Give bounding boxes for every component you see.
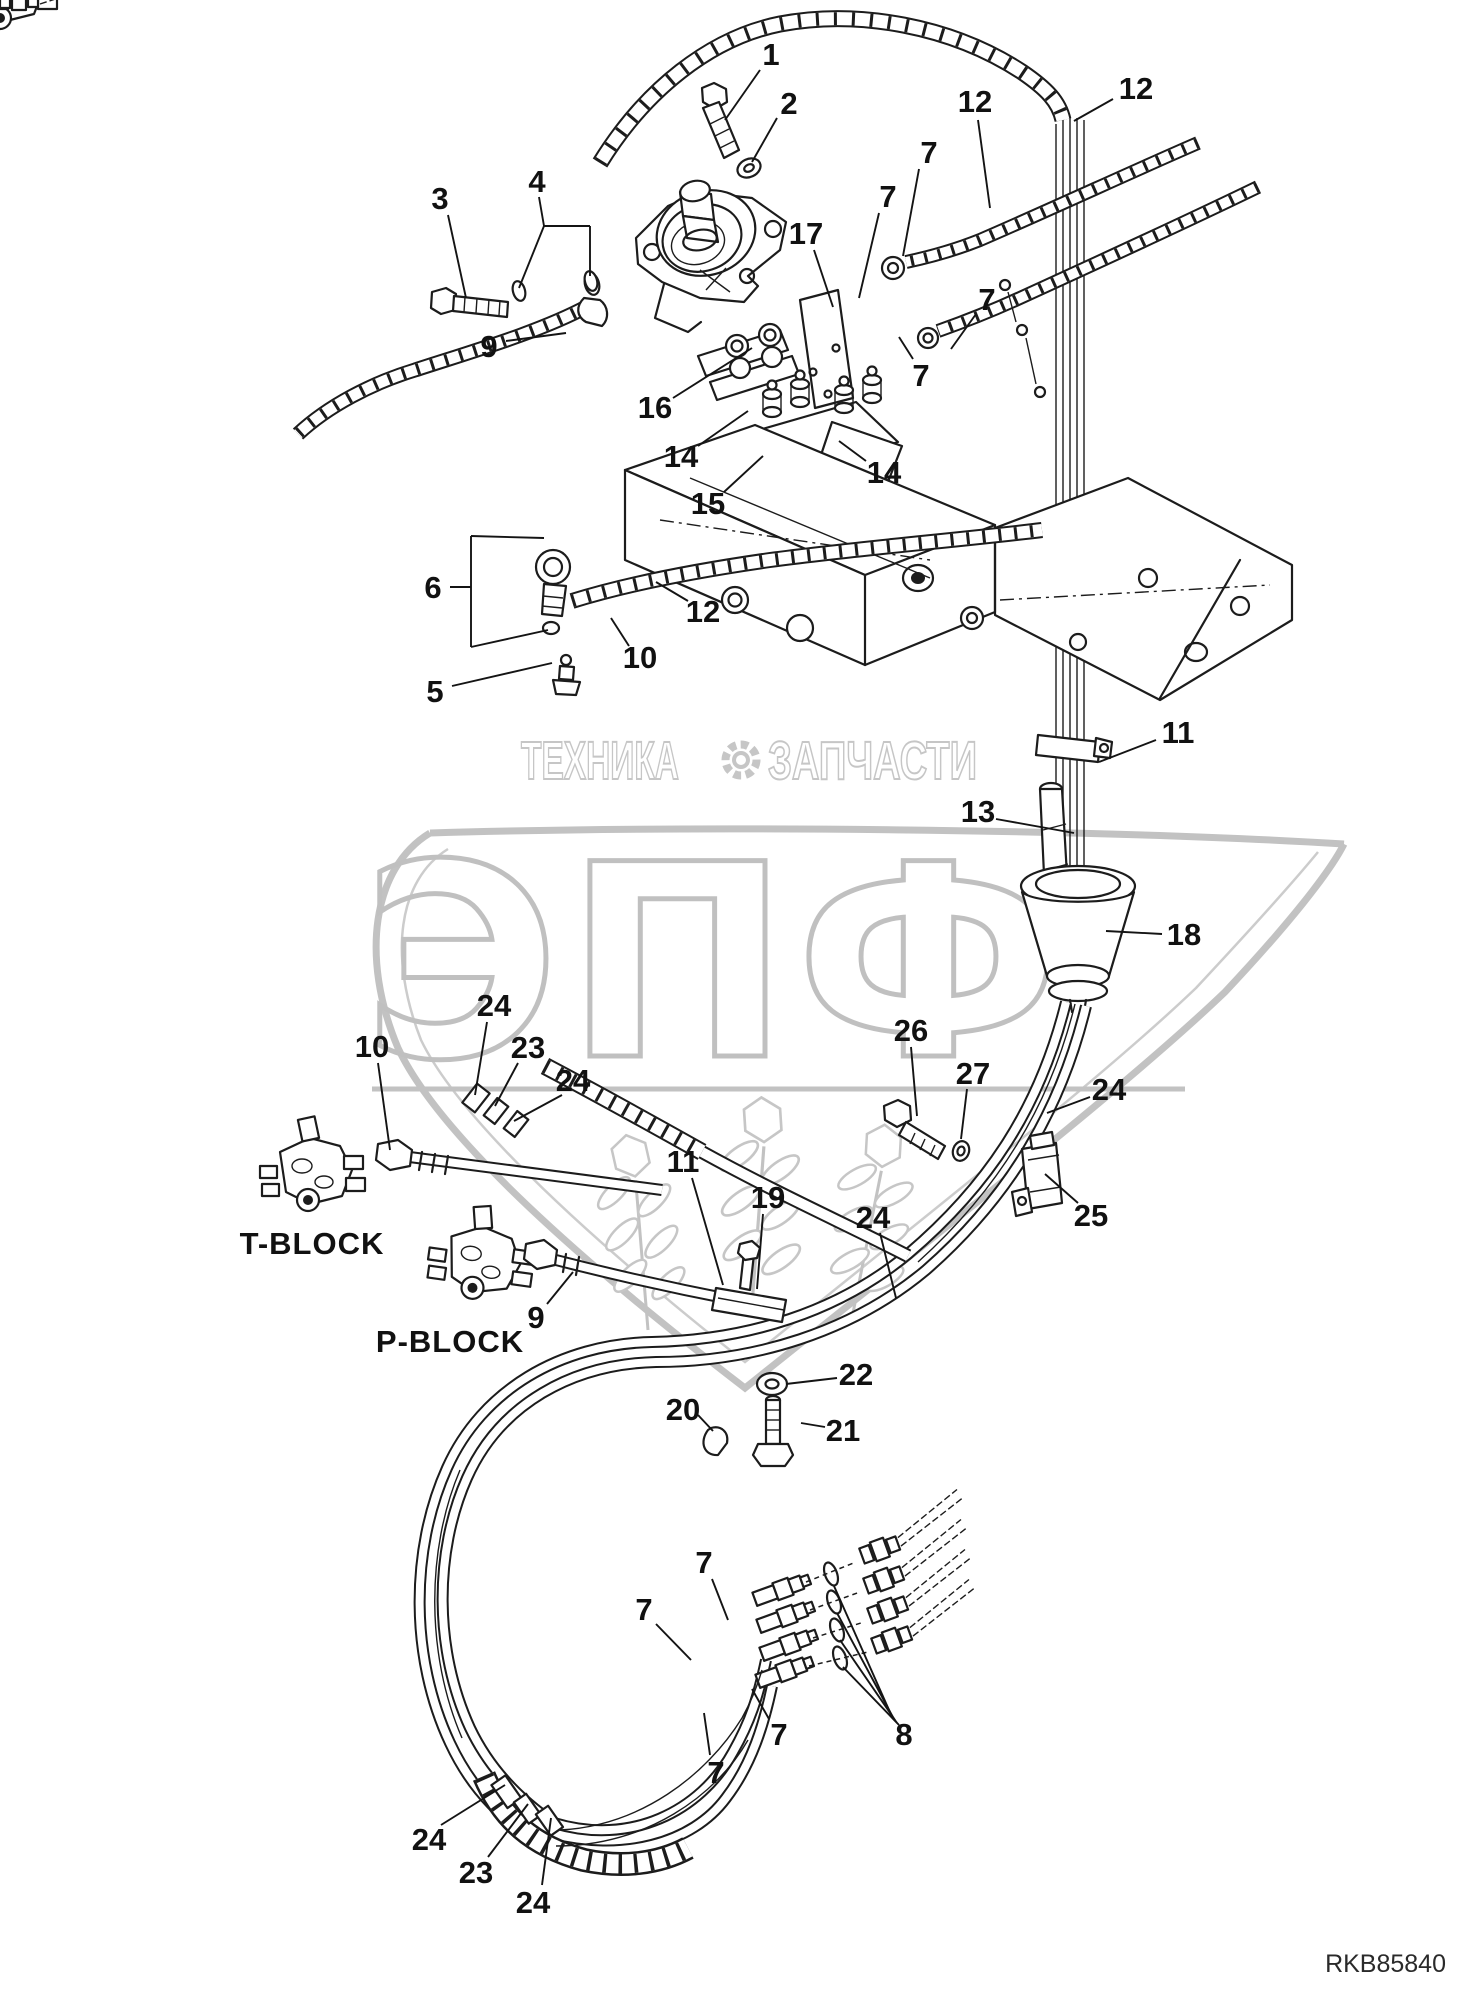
callout-11: 11 — [667, 1144, 700, 1179]
bolt-part1 — [702, 83, 739, 158]
callout-10: 10 — [355, 1029, 389, 1064]
leader-line — [1074, 99, 1113, 121]
callout-9: 9 — [480, 329, 497, 364]
callout-24: 24 — [412, 1822, 447, 1857]
leader-line — [656, 1624, 691, 1660]
callout-24: 24 — [1092, 1072, 1127, 1107]
leader-line — [471, 630, 548, 647]
washer-part22 — [757, 1373, 787, 1395]
callout-25: 25 — [1074, 1198, 1108, 1233]
callout-8: 8 — [895, 1717, 912, 1752]
callout-7: 7 — [978, 282, 995, 317]
washer-part27 — [950, 1139, 971, 1163]
part-code: RKB85840 — [1325, 1950, 1446, 1978]
callout-10: 10 — [623, 640, 657, 675]
callout-12: 12 — [686, 594, 720, 629]
callout-9: 9 — [527, 1300, 544, 1335]
mounting-bracket — [995, 478, 1292, 700]
leader-line — [903, 169, 919, 256]
bolt-part3 — [431, 288, 508, 317]
spiral-hose-top — [600, 19, 1063, 163]
watermark-left-text: ТЕХНИКА — [521, 731, 679, 791]
leader-line — [752, 118, 777, 162]
callout-1: 1 — [762, 37, 779, 72]
callout-5: 5 — [426, 674, 443, 709]
bolt-part21 — [753, 1396, 793, 1466]
callout-7: 7 — [770, 1717, 787, 1752]
hydraulic-piping-diagram: ТЕХНИКА ЗАПЧАСТИ ЭПФ — [0, 0, 1477, 2008]
leader-line — [471, 536, 544, 538]
pilot-valve — [636, 178, 786, 332]
callout-7: 7 — [920, 135, 937, 170]
leader-line — [452, 663, 552, 686]
callout-27: 27 — [956, 1056, 990, 1091]
callout-14: 14 — [664, 439, 699, 474]
leader-line — [899, 337, 913, 359]
leader-line — [704, 1713, 710, 1755]
callout-7: 7 — [695, 1545, 712, 1580]
leader-line — [978, 120, 990, 208]
p-block-label: P-BLOCK — [376, 1324, 524, 1359]
leader-line — [547, 1272, 573, 1304]
leader-line — [859, 213, 879, 298]
callout-11: 11 — [1162, 715, 1195, 750]
gear-icon — [726, 745, 757, 776]
oring-part4-left — [511, 280, 528, 302]
callout-14: 14 — [867, 455, 902, 490]
callout-7: 7 — [912, 358, 929, 393]
washer-part2 — [734, 155, 763, 181]
clamp-part20 — [703, 1427, 727, 1455]
leader-line — [801, 1423, 825, 1427]
leader-line — [519, 226, 544, 288]
watermark-right-text: ЗАПЧАСТИ — [768, 731, 977, 791]
t-block-manifold — [260, 1116, 365, 1211]
leader-line — [692, 1178, 723, 1285]
callout-12: 12 — [958, 84, 992, 119]
callout-6: 6 — [424, 570, 441, 605]
port-plates-part16 — [698, 324, 799, 400]
callout-17: 17 — [789, 216, 823, 251]
callout-2: 2 — [780, 86, 797, 121]
callout-24: 24 — [516, 1885, 551, 1920]
callout-16: 16 — [638, 390, 672, 425]
callout-19: 19 — [751, 1180, 785, 1215]
callout-24: 24 — [477, 988, 512, 1023]
callout-23: 23 — [511, 1030, 545, 1065]
leader-line — [448, 215, 466, 298]
callout-21: 21 — [826, 1413, 860, 1448]
leader-line — [725, 70, 760, 120]
p-block-manifold — [423, 1198, 540, 1306]
leader-line — [698, 1415, 713, 1431]
callout-24: 24 — [556, 1063, 591, 1098]
t-block-label: T-BLOCK — [240, 1226, 385, 1261]
callout-13: 13 — [961, 794, 995, 829]
callout-24: 24 — [856, 1200, 891, 1235]
callout-7: 7 — [707, 1755, 724, 1790]
leader-line — [539, 197, 544, 226]
callout-18: 18 — [1167, 917, 1201, 952]
callout-20: 20 — [666, 1392, 700, 1427]
callout-12: 12 — [1119, 71, 1153, 106]
clamp-part11-top — [1036, 735, 1112, 762]
leader-line — [786, 1378, 837, 1384]
fitting-part5 — [553, 655, 580, 695]
callout-4: 4 — [528, 164, 546, 199]
callout-26: 26 — [894, 1013, 928, 1048]
callout-22: 22 — [839, 1357, 873, 1392]
callout-3: 3 — [431, 181, 448, 216]
oring-part4-right — [583, 270, 600, 292]
callout-23: 23 — [459, 1855, 493, 1890]
parts-diagram-page: ТЕХНИКА ЗАПЧАСТИ ЭПФ — [0, 0, 1477, 2008]
callout-7: 7 — [879, 179, 896, 214]
callout-7: 7 — [635, 1592, 652, 1627]
clamp-part25 — [1012, 1132, 1062, 1216]
leader-line — [712, 1579, 728, 1620]
leader-line — [840, 1640, 897, 1723]
callout-15: 15 — [691, 486, 725, 521]
